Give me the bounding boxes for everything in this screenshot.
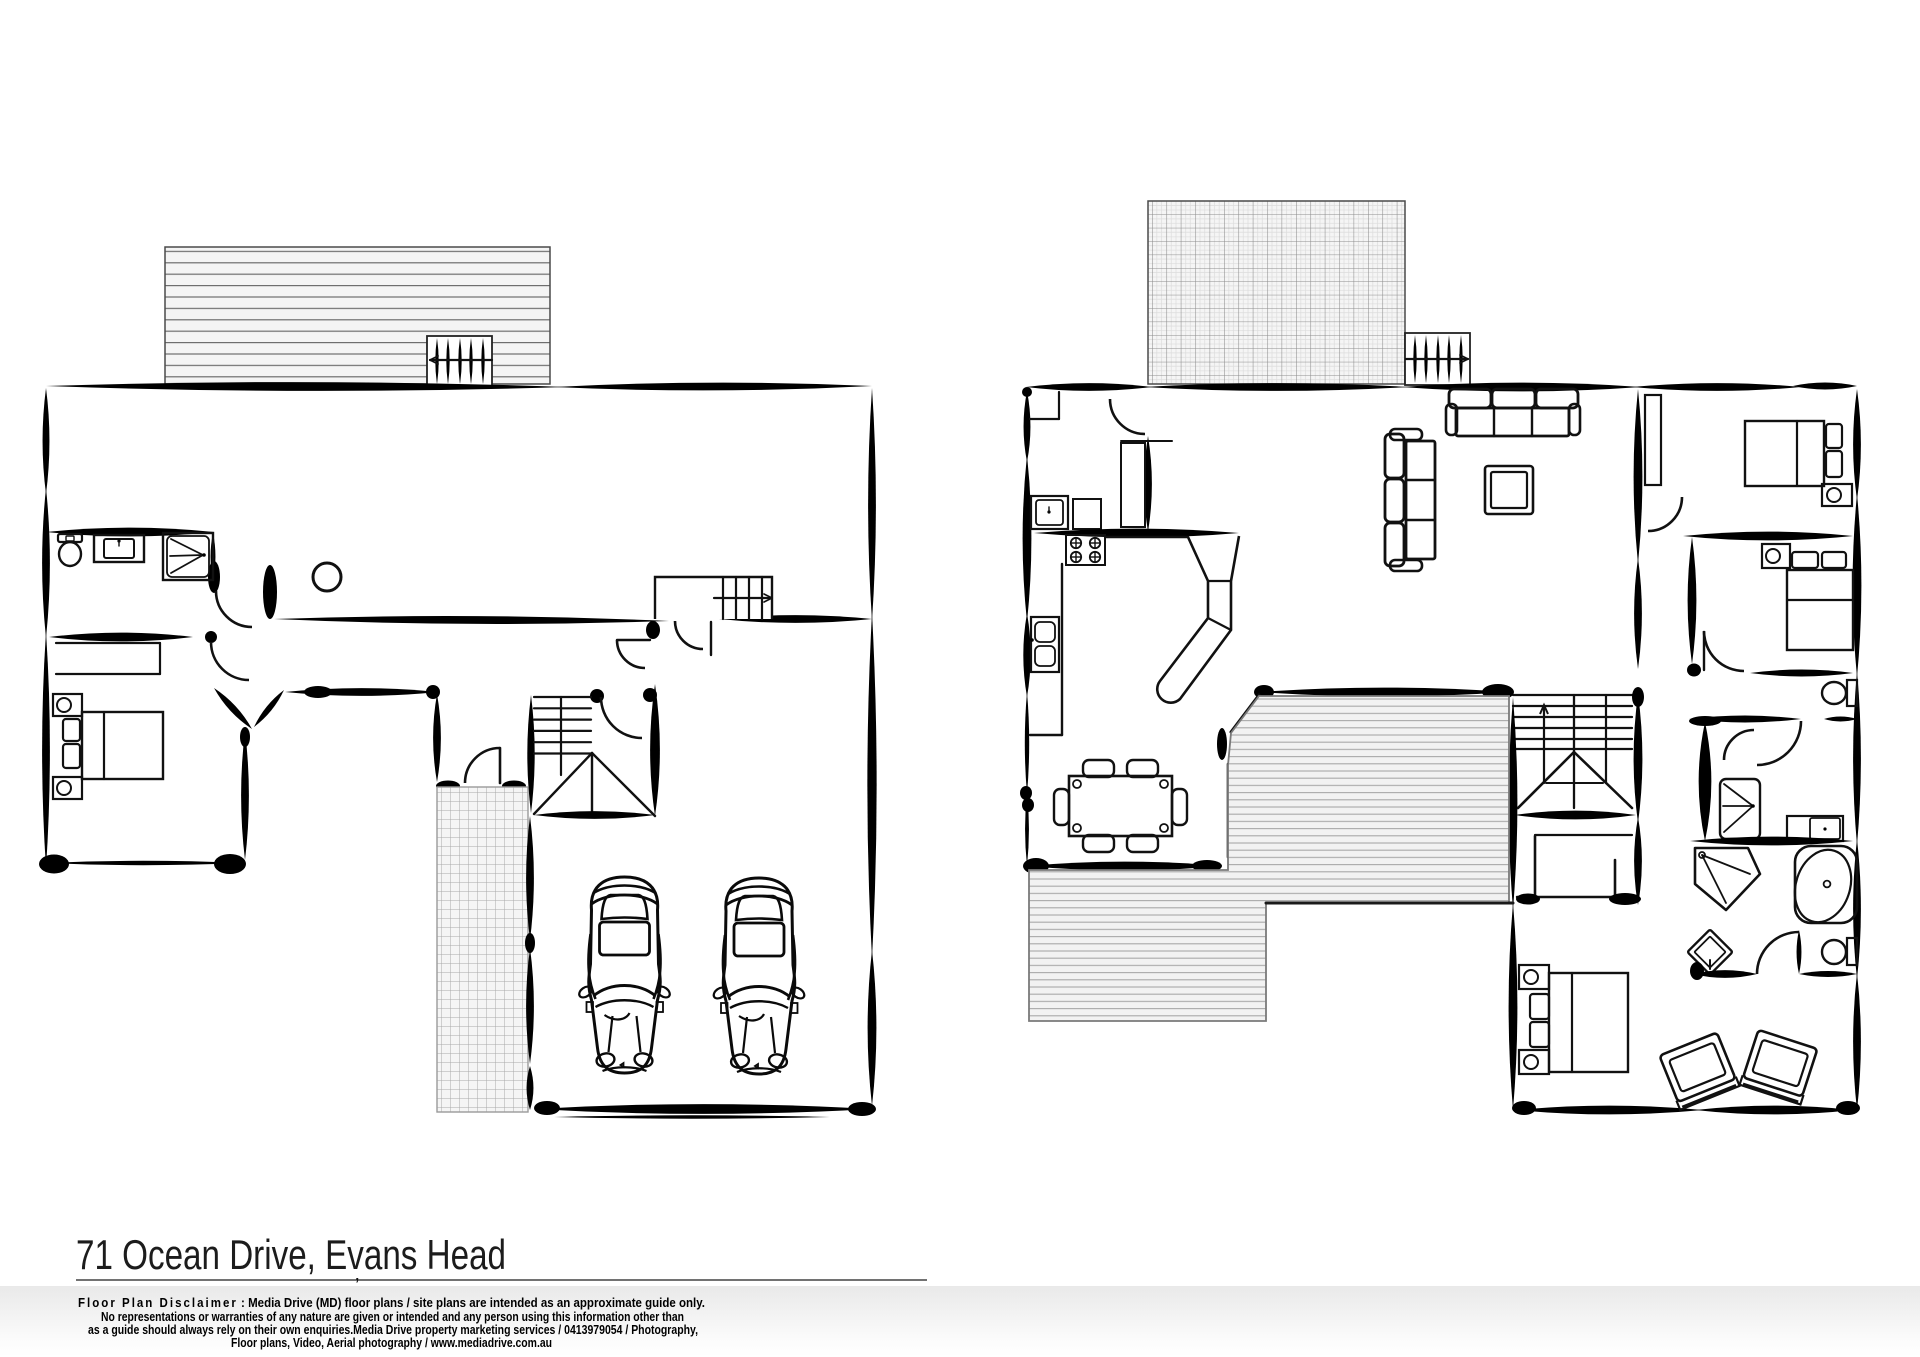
svg-text:Floor Plan Disclaimer : Media: Floor Plan Disclaimer : Media Drive (MD)… (78, 1296, 705, 1310)
svg-text:No representations or warranti: No representations or warranties of any … (101, 1310, 684, 1324)
svg-text:Floor plans, Video, Aerial ph: Floor plans, Video, Aerial photography /… (231, 1336, 552, 1350)
svg-text:71 Ocean Drive, Evans Head: 71 Ocean Drive, Evans Head (76, 1231, 506, 1278)
svg-text:’: ’ (355, 1275, 359, 1297)
svg-text:as a guide should always rely: as a guide should always rely on their o… (88, 1323, 698, 1337)
